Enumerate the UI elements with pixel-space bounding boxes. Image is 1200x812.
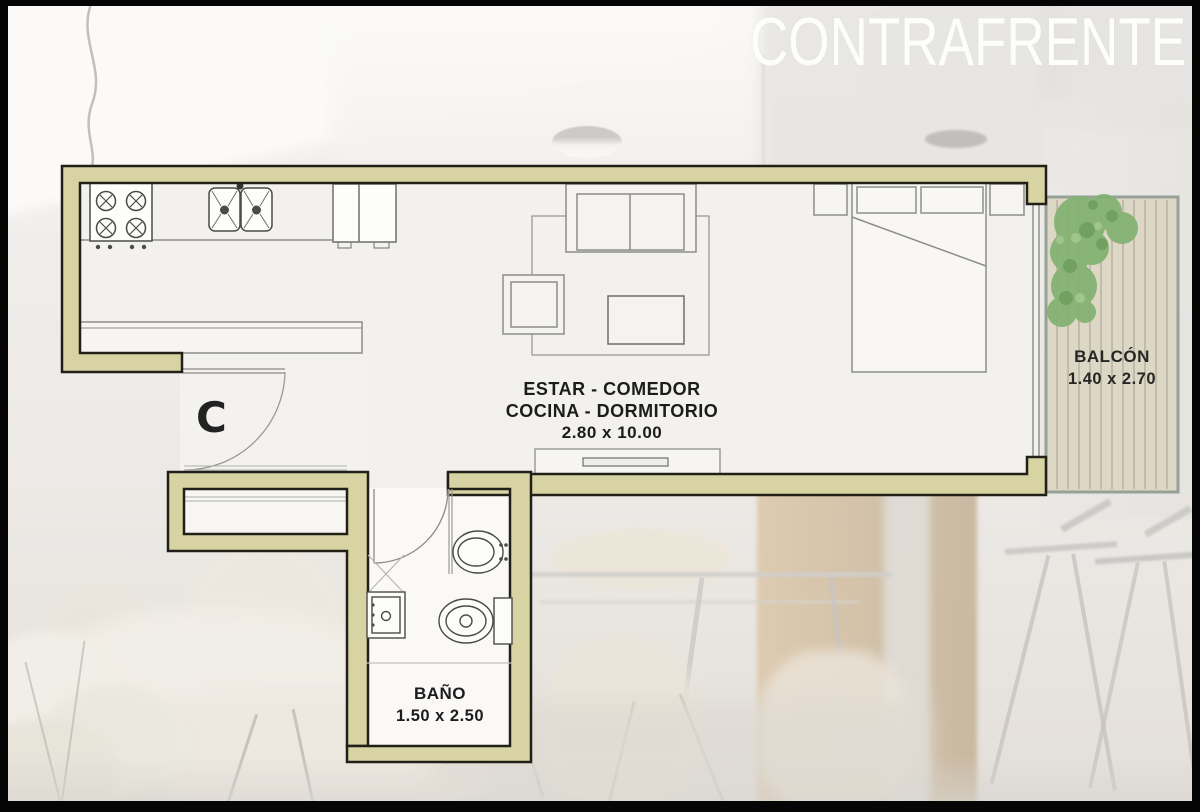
- page-title: CONTRAFRENTE: [750, 8, 1186, 76]
- stove-icon: [90, 183, 152, 249]
- balcony-name: BALCÓN: [1068, 345, 1156, 368]
- unit-letter: C: [196, 393, 227, 442]
- screenshot-root: ESTAR - COMEDOR COCINA - DORMITORIO 2.80…: [0, 0, 1200, 812]
- balcony-label: BALCÓN 1.40 x 2.70: [1068, 345, 1156, 390]
- bathroom-dimensions: 1.50 x 2.50: [396, 705, 484, 727]
- frame-top: [0, 0, 1200, 6]
- tv-unit-icon: [535, 449, 720, 476]
- main-room-dimensions: 2.80 x 10.00: [506, 422, 719, 443]
- bed-icon: [852, 183, 986, 372]
- bidet-icon: [439, 598, 512, 644]
- sofa-icon: [566, 184, 696, 252]
- main-room-name-line1: ESTAR - COMEDOR: [506, 378, 719, 400]
- bathroom-name: BAÑO: [396, 682, 484, 705]
- kitchen-island: [80, 322, 362, 353]
- balcony-dimensions: 1.40 x 2.70: [1068, 368, 1156, 390]
- bath-sink-icon: [367, 592, 405, 638]
- frame-right: [1192, 0, 1200, 812]
- frame-left: [0, 0, 8, 812]
- coffee-table-icon: [608, 296, 684, 344]
- fridge-icon: [333, 184, 396, 248]
- main-room-name-line2: COCINA - DORMITORIO: [506, 400, 719, 422]
- main-room-label: ESTAR - COMEDOR COCINA - DORMITORIO 2.80…: [506, 378, 719, 443]
- armchair-icon: [503, 275, 564, 334]
- bathroom-label: BAÑO 1.50 x 2.50: [396, 682, 484, 727]
- frame-bottom: [0, 801, 1200, 812]
